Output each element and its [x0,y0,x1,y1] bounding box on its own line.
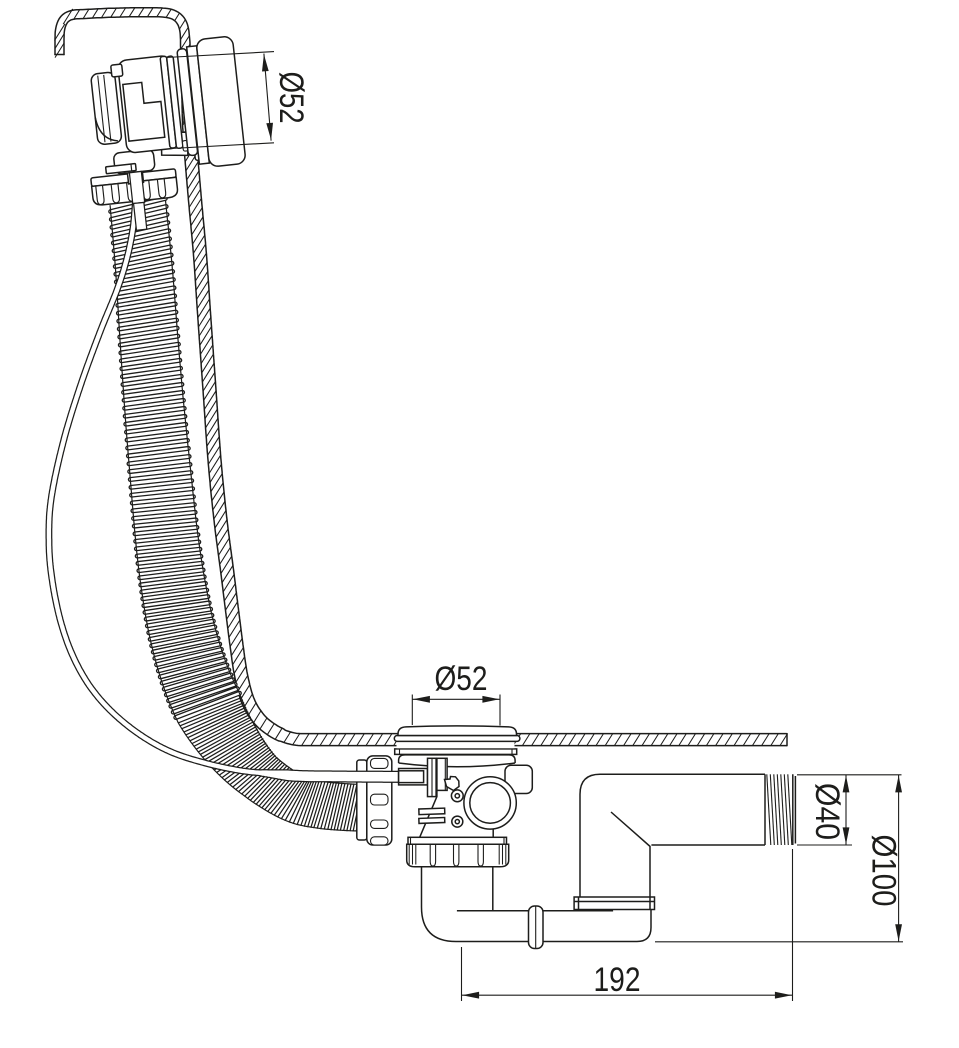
svg-text:Ø52: Ø52 [272,72,310,124]
svg-text:192: 192 [594,961,641,999]
svg-text:Ø40: Ø40 [808,783,846,840]
svg-text:Ø52: Ø52 [435,660,488,698]
svg-text:Ø100: Ø100 [865,835,903,907]
